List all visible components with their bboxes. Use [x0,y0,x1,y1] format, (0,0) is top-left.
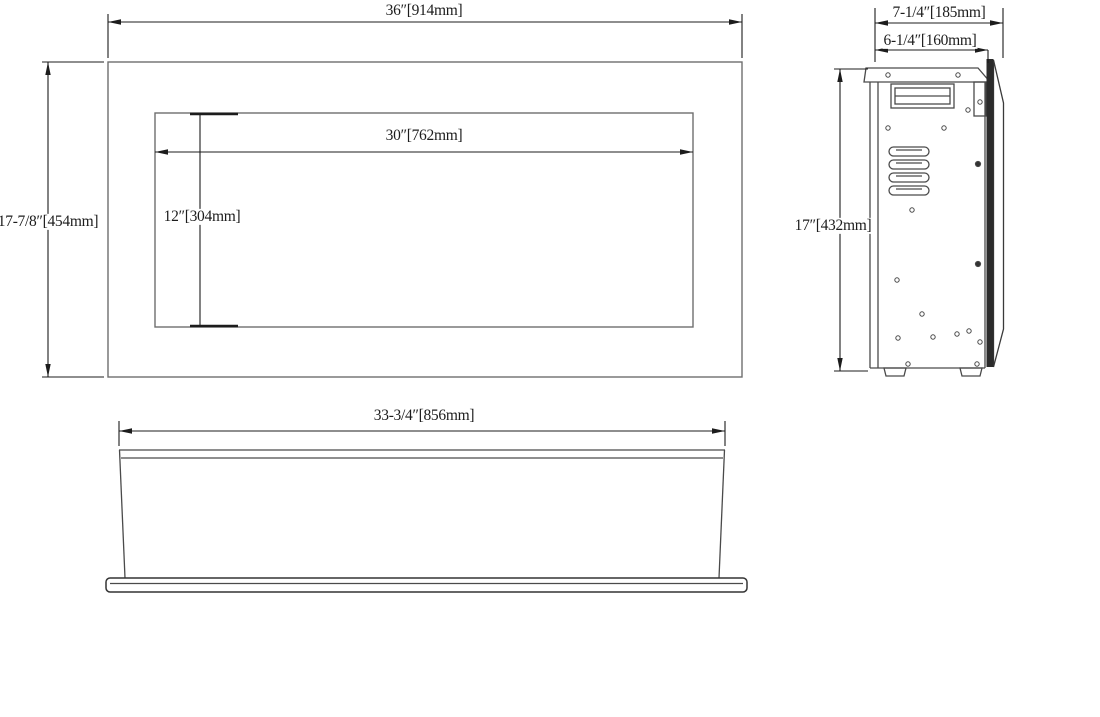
bottom-view-dimensions [119,421,725,446]
bottom-view-outline [106,450,747,592]
front-view-dimensions [42,14,742,377]
dimension-label-side-overall-depth: 7-1/4″[185mm] [892,5,987,21]
side-view-outline [864,59,1004,376]
side-louver-vents [889,147,929,195]
side-front-panel-bar [987,59,994,367]
bottom-front-panel-bar [106,578,747,592]
technical-drawing-canvas: 36″[914mm] 17-7/8″[454mm] 30″[762mm] 12″… [0,0,1100,717]
dimension-label-front-overall-width: 36″[914mm] [385,3,464,19]
dimension-label-bottom-width: 33-3/4″[856mm] [373,408,475,424]
side-foot-left [884,368,906,376]
side-foot-right [960,368,982,376]
dimension-label-front-opening-width: 30″[762mm] [385,128,464,144]
dimension-label-side-height: 17″[432mm] [794,218,873,234]
dimension-label-front-opening-height: 12″[304mm] [163,209,242,225]
side-front-panel-edge [994,60,1004,367]
side-top-cap [864,68,990,82]
side-mounting-bracket [974,82,986,116]
side-screws [886,73,982,366]
dimension-label-side-body-depth: 6-1/4″[160mm] [883,33,978,49]
dimension-label-front-overall-height: 17-7/8″[454mm] [0,214,99,230]
drawing-linework [0,0,1100,717]
